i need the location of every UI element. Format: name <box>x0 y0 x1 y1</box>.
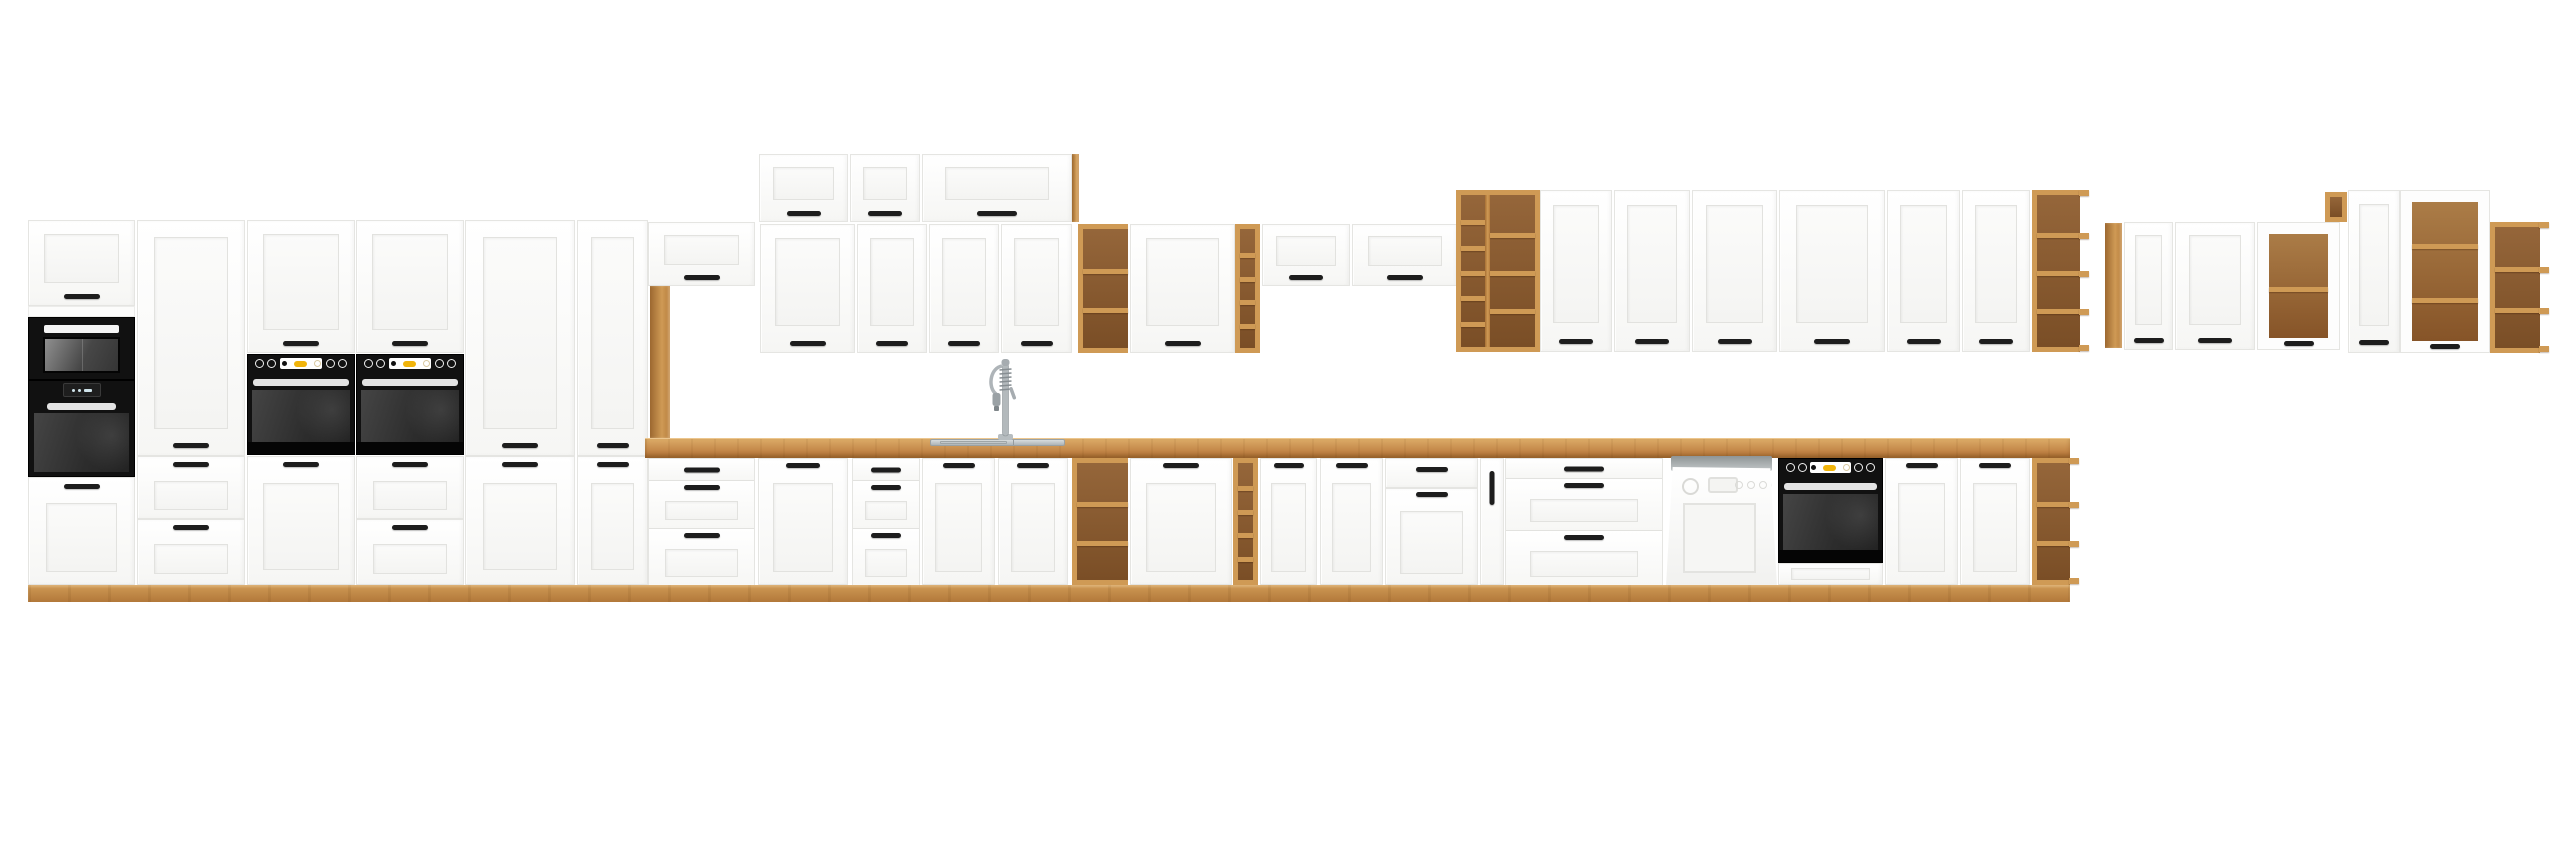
wall-tall-door-1 <box>1540 190 1612 352</box>
oven-column-2-drawer-1-inner-panel <box>373 481 447 510</box>
built-in-oven-2-knob-1 <box>364 359 373 368</box>
right-display-cabinet-1-shelf-1 <box>2269 287 2328 292</box>
tall-oven-unit-top-door-handle <box>64 294 100 299</box>
wall-top-oak-end-panel <box>1072 154 1079 222</box>
oven-column-2-drawer-1 <box>356 456 464 519</box>
base-drawers-wide <box>1505 458 1663 585</box>
base-open-shelf-shelf-1 <box>1077 502 1128 507</box>
base-drawers-1-drawer-1 <box>649 459 754 481</box>
right2-wall-door-inner-panel <box>2359 204 2389 326</box>
base-oak-end-shelf-shelf-lip-3 <box>2069 578 2079 584</box>
oven-column-1-base-door <box>247 456 355 585</box>
right-oak-corner-shelf-shelf-2 <box>2495 308 2540 313</box>
right2-wall-door <box>2348 190 2400 353</box>
wall-tall-door-3-handle <box>1718 339 1752 344</box>
built-in-oven-1-control-strip <box>248 355 354 372</box>
built-in-oven-base-door-glass <box>1783 494 1878 550</box>
base-oak-column-shelf-4 <box>1238 557 1253 562</box>
wall-oak-end-shelf <box>2032 190 2080 352</box>
dishwasher-indicator-lights <box>1735 481 1779 489</box>
oak-shelf-tower-cubby-shelf-5 <box>1461 322 1485 327</box>
wall-door-3-handle <box>948 341 980 346</box>
wall-open-shelf-shelf-2 <box>1083 308 1128 313</box>
built-in-oven-1-knob-2 <box>267 359 276 368</box>
microwave-window-divider <box>82 339 83 371</box>
tall-oven-unit-base-door <box>28 477 135 585</box>
base-oak-end-shelf-shelf-lip-2 <box>2069 541 2079 547</box>
dishwasher-light-3 <box>1759 481 1767 489</box>
oven-column-1-base-door-inner-panel <box>263 483 339 570</box>
base-door-1 <box>758 458 848 585</box>
right-oak-corner-shelf-shelf-lip-2 <box>2539 308 2549 314</box>
built-in-oven-1-knob-4 <box>338 359 347 368</box>
wall-door-2-inner-panel <box>870 238 914 326</box>
wall-door-4 <box>1001 224 1072 353</box>
tall-cabinet-2-upper-door-inner-panel <box>591 237 634 429</box>
wall-oak-end-shelf-shelf-lip-4 <box>2079 345 2089 351</box>
wall-oak-end-shelf-shelf-2 <box>2037 271 2080 276</box>
right-display-cabinet-2-shelf-2 <box>2412 298 2478 303</box>
right-oak-mini-shelf <box>2325 192 2347 222</box>
base-combi-door-inner-panel <box>1400 511 1463 574</box>
base-door-2-inner-panel <box>1146 483 1216 572</box>
base-door-2 <box>1130 458 1232 585</box>
base-combi-door <box>1385 488 1478 585</box>
wall-top-cabinet-1-inner-panel <box>773 167 834 200</box>
base-oak-end-shelf-shelf-1 <box>2037 502 2070 507</box>
wall-tall-door-6-handle <box>1979 339 2013 344</box>
base-oak-column-shelf-3 <box>1238 533 1253 538</box>
wall-oak-end-shelf-shelf-lip-0 <box>2079 190 2089 196</box>
base-door-5 <box>1885 458 1958 585</box>
base-door-6 <box>1960 458 2030 585</box>
tall-cabinet-1-upper-door-handle <box>502 443 538 448</box>
pantry-drawer-2-handle <box>173 525 209 530</box>
built-in-oven-tall-display-dot-1 <box>72 389 75 392</box>
right-display-cabinet-2-handle <box>2430 344 2460 349</box>
built-in-oven-2-indicator-ring <box>423 360 430 367</box>
tall-cabinet-2-upper-door <box>577 220 648 456</box>
base-drawers-1-drawer-1-handle <box>684 467 720 472</box>
base-oak-end-shelf-shelf-lip-1 <box>2069 502 2079 508</box>
oak-shelf-tower <box>1456 190 1540 352</box>
oak-post <box>650 286 670 438</box>
oven-base-drawer <box>1778 563 1883 585</box>
wall-oak-end-shelf-shelf-lip-3 <box>2079 309 2089 315</box>
tall-oven-unit-filler <box>28 306 135 317</box>
microwave <box>28 317 135 380</box>
dishwasher-handle-recess <box>1708 477 1738 493</box>
base-open-shelf <box>1072 458 1128 585</box>
wall-oak-end-shelf-shelf-3 <box>2037 309 2080 314</box>
base-cargo-door <box>1480 458 1504 585</box>
wall-oak-end-shelf-shelf-lip-2 <box>2079 271 2089 277</box>
oven-column-1-base-door-handle <box>283 462 319 467</box>
built-in-oven-2-knob-4 <box>447 359 456 368</box>
built-in-oven-tall-control-strip <box>29 381 134 399</box>
right-display-cabinet-2 <box>2400 190 2490 353</box>
oven-column-2-wall-door-inner-panel <box>372 234 448 330</box>
wall-cabinet-short-1-inner-panel <box>1276 236 1336 266</box>
dishwasher <box>1665 456 1780 586</box>
wall-open-shelf-shelf-1 <box>1083 269 1128 274</box>
right-wall-door-2-handle <box>2198 338 2232 343</box>
built-in-oven-tall-display-dot-2 <box>78 389 81 392</box>
oak-shelf-tower-shelf-3 <box>1490 309 1535 314</box>
base-door-5-inner-panel <box>1898 483 1945 572</box>
microwave-window <box>43 337 121 373</box>
built-in-oven-2 <box>356 354 464 455</box>
faucet-icon <box>985 357 1025 440</box>
built-in-oven-2-door-glass <box>361 390 459 442</box>
wall-open-shelf <box>1078 224 1128 353</box>
wall-door-4-handle <box>1021 341 1053 346</box>
wall-door-5-handle <box>1165 341 1201 346</box>
wall-tall-door-5-inner-panel <box>1900 205 1947 323</box>
base-door-3-handle <box>1274 463 1304 468</box>
right-oak-corner-shelf-shelf-1 <box>2495 267 2540 272</box>
wall-oak-column <box>1235 224 1260 353</box>
base-cargo-door-handle <box>1490 471 1495 505</box>
built-in-oven-2-bottom-trim <box>357 442 463 454</box>
sink-base-door-1-handle <box>943 463 975 468</box>
right-group-oak-side-panel <box>2105 223 2122 348</box>
oven-column-2-drawer-2-inner-panel <box>373 544 447 574</box>
base-drawers-2-drawer-3 <box>853 529 919 586</box>
dishwasher-program-knob <box>1682 478 1699 495</box>
wall-tall-door-3-inner-panel <box>1706 205 1763 323</box>
right-oak-corner-shelf-shelf-lip-3 <box>2539 346 2549 352</box>
dishwasher-open-door <box>1666 467 1777 586</box>
base-door-6-handle <box>1979 463 2011 468</box>
built-in-oven-base-control-strip <box>1779 459 1882 476</box>
right-oak-corner-shelf-shelf-lip-1 <box>2539 267 2549 273</box>
base-drawers-1-drawer-3-handle <box>684 533 720 538</box>
tall-cabinet-2-lower-door-handle <box>597 462 629 467</box>
wall-top-cabinet-3-inner-panel <box>945 167 1049 200</box>
tall-cabinet-1-upper-door-inner-panel <box>483 237 557 429</box>
wall-oak-column-shelf-2 <box>1240 277 1255 282</box>
sink-bowl-edge <box>940 441 1007 444</box>
wall-tall-door-6 <box>1962 190 2030 352</box>
tall-cabinet-1-lower-door-inner-panel <box>483 483 557 570</box>
microwave-door-bar <box>44 325 120 333</box>
wall-oak-end-shelf-shelf-lip-1 <box>2079 233 2089 239</box>
base-drawers-1-drawer-2 <box>649 481 754 529</box>
tall-cabinet-2-upper-door-handle <box>597 443 629 448</box>
wall-tall-door-3 <box>1692 190 1777 352</box>
oak-shelf-tower-cubby-shelf-1 <box>1461 220 1485 225</box>
wall-tall-door-2 <box>1614 190 1690 352</box>
base-drawers-2-drawer-2-handle <box>871 485 901 490</box>
built-in-oven-1-door-glass <box>252 390 350 442</box>
wall-oak-column-shelf-1 <box>1240 253 1255 258</box>
right-oak-corner-shelf <box>2490 222 2540 353</box>
base-door-1-handle <box>786 463 820 468</box>
wall-oak-end-shelf-shelf-1 <box>2037 233 2080 238</box>
pantry-upper-door-handle <box>173 443 209 448</box>
built-in-oven-1-timer-accent <box>294 361 307 367</box>
wall-top-cabinet-1 <box>759 154 848 222</box>
built-in-oven-base-indicator-ring <box>1843 464 1850 471</box>
built-in-oven-1-bottom-trim <box>248 442 354 454</box>
right-display-cabinet-1-handle <box>2284 341 2314 346</box>
built-in-oven-1 <box>247 354 355 455</box>
right-wall-door-1-inner-panel <box>2135 235 2162 325</box>
base-combi-top-drawer <box>1385 458 1478 488</box>
oak-shelf-tower-cubby-shelf-3 <box>1461 271 1485 276</box>
right-wall-door-2-inner-panel <box>2189 235 2241 325</box>
built-in-oven-1-knob-3 <box>326 359 335 368</box>
base-oak-end-shelf-shelf-lip-0 <box>2069 458 2079 464</box>
base-door-2-handle <box>1163 463 1199 468</box>
built-in-oven-base-knob-2 <box>1798 463 1807 472</box>
wall-door-1-handle <box>790 341 826 346</box>
base-door-4 <box>1320 458 1383 585</box>
wall-door-3 <box>929 224 999 353</box>
oven-column-1-wall-door-inner-panel <box>263 234 339 330</box>
built-in-oven-1-indicator-ring <box>314 360 321 367</box>
wall-tall-door-4-inner-panel <box>1796 205 1868 323</box>
base-drawers-1-drawer-3 <box>649 529 754 586</box>
sink-base-door-2-inner-panel <box>1011 483 1055 572</box>
built-in-oven-base-bottom-trim <box>1779 550 1882 562</box>
built-in-oven-tall <box>28 380 135 477</box>
wall-top-cabinet-3-handle <box>977 211 1017 216</box>
pantry-drawer-1 <box>137 456 245 519</box>
wall-oak-column-shelf-3 <box>1240 300 1255 305</box>
built-in-oven-base <box>1778 458 1883 563</box>
oven-column-2-wall-door <box>356 220 464 353</box>
oak-shelf-tower-shelf-1 <box>1490 233 1535 238</box>
base-open-shelf-shelf-2 <box>1077 541 1128 546</box>
built-in-oven-base-timer-accent <box>1823 465 1836 471</box>
right-wall-door-1 <box>2124 222 2173 350</box>
oak-shelf-tower-shelf-column <box>1490 195 1535 347</box>
sink <box>930 439 1065 446</box>
base-drawers-wide-drawer-2-panel <box>1530 499 1638 522</box>
wall-cabinet-over-post-handle <box>684 275 720 280</box>
base-door-4-inner-panel <box>1332 483 1371 572</box>
tall-oven-unit-top-door-inner-panel <box>44 234 119 283</box>
built-in-oven-tall-door-glass <box>34 413 129 472</box>
built-in-oven-base-control-panel <box>1810 462 1851 473</box>
base-drawers-wide-drawer-1 <box>1506 459 1662 479</box>
base-door-4-handle <box>1336 463 1368 468</box>
right-display-cabinet-1 <box>2257 222 2340 350</box>
pantry-drawer-2-inner-panel <box>154 544 228 574</box>
built-in-oven-2-knob-2 <box>376 359 385 368</box>
base-drawers-wide-drawer-3-panel <box>1530 551 1638 577</box>
base-drawers-2 <box>852 458 920 585</box>
right-wall-door-2 <box>2175 222 2255 350</box>
pantry-upper-door <box>137 220 245 456</box>
base-oak-end-shelf-shelf-2 <box>2037 541 2070 546</box>
built-in-oven-2-control-strip <box>357 355 463 372</box>
built-in-oven-2-control-panel <box>389 358 431 369</box>
wall-tall-door-5 <box>1887 190 1960 352</box>
tall-cabinet-1-lower-door <box>465 456 575 585</box>
pantry-drawer-1-handle <box>173 462 209 467</box>
base-oak-column <box>1233 458 1258 585</box>
wall-door-4-inner-panel <box>1014 238 1059 326</box>
built-in-oven-2-knob-3 <box>435 359 444 368</box>
kitchen-set-product-image <box>0 0 2560 848</box>
built-in-oven-base-knob-3 <box>1854 463 1863 472</box>
oven-column-2-drawer-1-handle <box>392 462 428 467</box>
wall-cabinet-over-post <box>648 222 755 286</box>
base-drawers-2-drawer-1 <box>853 459 919 481</box>
base-drawers-2-drawer-3-handle <box>871 533 901 538</box>
base-drawers-2-drawer-1-handle <box>871 467 901 472</box>
oven-column-1-wall-door <box>247 220 355 353</box>
base-oak-column-shelf-2 <box>1238 510 1253 515</box>
tall-cabinet-2-lower-door-inner-panel <box>591 483 634 570</box>
wall-tall-door-1-inner-panel <box>1553 205 1599 323</box>
right2-wall-door-handle <box>2359 340 2389 345</box>
wall-top-cabinet-2-handle <box>868 211 902 216</box>
built-in-oven-base-power-dot <box>1811 465 1816 470</box>
right-oak-corner-shelf-shelf-lip-0 <box>2539 222 2549 228</box>
base-combi-top-drawer-handle <box>1416 467 1448 472</box>
base-door-5-handle <box>1906 463 1938 468</box>
built-in-oven-1-control-panel <box>280 358 322 369</box>
base-combi-door-handle <box>1416 492 1448 497</box>
base-drawers-1 <box>648 458 755 585</box>
base-drawers-wide-drawer-3 <box>1506 531 1662 586</box>
kitchen-faucet <box>985 357 1025 440</box>
built-in-oven-base-handle-bar <box>1784 483 1877 490</box>
wall-oak-column-shelf-4 <box>1240 324 1255 329</box>
right-wall-door-1-handle <box>2134 338 2164 343</box>
wall-door-2 <box>857 224 927 353</box>
base-drawers-1-drawer-2-panel <box>665 501 738 520</box>
oven-base-drawer-inner-panel <box>1791 568 1870 580</box>
dishwasher-door-panel-frame <box>1683 503 1756 573</box>
base-drawers-1-drawer-2-handle <box>684 485 720 490</box>
oak-shelf-tower-cubby-shelf-4 <box>1461 296 1485 301</box>
built-in-oven-2-timer-accent <box>403 361 416 367</box>
dishwasher-light-1 <box>1735 481 1743 489</box>
wall-tall-door-1-handle <box>1559 339 1593 344</box>
base-door-1-inner-panel <box>773 483 833 572</box>
base-drawers-wide-drawer-3-handle <box>1564 535 1604 540</box>
built-in-oven-base-knob-4 <box>1866 463 1875 472</box>
base-oak-end-shelf <box>2032 458 2070 585</box>
wall-tall-door-5-handle <box>1907 339 1941 344</box>
wall-cabinet-over-post-inner-panel <box>664 235 739 265</box>
oven-column-2-drawer-2 <box>356 519 464 585</box>
wall-door-5-inner-panel <box>1146 238 1219 326</box>
base-drawers-wide-drawer-1-handle <box>1564 466 1604 471</box>
tall-cabinet-1-lower-door-handle <box>502 462 538 467</box>
wall-door-3-inner-panel <box>942 238 986 326</box>
wall-top-cabinet-1-handle <box>787 211 821 216</box>
sink-base-door-1 <box>922 458 995 585</box>
tall-cabinet-1-upper-door <box>465 220 575 456</box>
sink-base-door-2-handle <box>1017 463 1049 468</box>
wall-tall-door-4-handle <box>1814 339 1850 344</box>
base-drawers-2-drawer-2 <box>853 481 919 529</box>
built-in-oven-2-power-dot <box>391 361 396 366</box>
base-drawers-wide-drawer-2 <box>1506 479 1662 531</box>
base-door-3 <box>1260 458 1317 585</box>
built-in-oven-base-knob-1 <box>1786 463 1795 472</box>
wall-top-cabinet-3 <box>922 154 1072 222</box>
wall-cabinet-short-2-inner-panel <box>1368 236 1442 266</box>
sink-base-door-2 <box>998 458 1068 585</box>
dishwasher-light-2 <box>1747 481 1755 489</box>
oak-shelf-tower-cubby-shelf-2 <box>1461 246 1485 251</box>
right-display-cabinet-1-interior <box>2269 234 2328 338</box>
tall-oven-unit-base-door-inner-panel <box>46 503 117 572</box>
oven-column-2-drawer-2-handle <box>392 525 428 530</box>
base-drawers-1-drawer-3-panel <box>665 549 738 577</box>
wall-tall-door-2-inner-panel <box>1627 205 1677 323</box>
wall-tall-door-2-handle <box>1635 339 1669 344</box>
base-oak-column-shelf-1 <box>1238 486 1253 491</box>
base-door-3-inner-panel <box>1271 483 1306 572</box>
pantry-upper-door-inner-panel <box>154 237 228 429</box>
wall-cabinet-short-2 <box>1352 224 1458 286</box>
base-drawers-wide-drawer-2-handle <box>1564 483 1604 488</box>
base-drawers-2-drawer-3-panel <box>865 549 907 577</box>
tall-oven-unit-top-door <box>28 220 135 306</box>
wall-tall-door-6-inner-panel <box>1975 205 2017 323</box>
sink-base-door-1-inner-panel <box>935 483 982 572</box>
wall-door-2-handle <box>876 341 908 346</box>
built-in-oven-1-handle-bar <box>253 379 349 386</box>
pantry-drawer-2 <box>137 519 245 585</box>
countertop <box>645 438 2070 458</box>
wall-cabinet-short-1 <box>1262 224 1350 286</box>
right-display-cabinet-2-shelf-1 <box>2412 244 2478 249</box>
right-display-cabinet-2-interior <box>2412 202 2478 341</box>
plinth <box>28 585 2070 602</box>
oak-shelf-tower-shelf-2 <box>1490 271 1535 276</box>
wall-door-5 <box>1130 224 1235 353</box>
tall-oven-unit-base-door-handle <box>64 484 100 489</box>
wall-cabinet-short-1-handle <box>1289 275 1323 280</box>
wall-top-cabinet-2-inner-panel <box>863 167 907 200</box>
wall-top-cabinet-2 <box>850 154 920 222</box>
built-in-oven-1-power-dot <box>282 361 287 366</box>
built-in-oven-2-handle-bar <box>362 379 458 386</box>
oven-column-2-wall-door-handle <box>392 341 428 346</box>
built-in-oven-tall-display-segment <box>84 389 92 392</box>
wall-cabinet-short-2-handle <box>1387 275 1423 280</box>
pantry-drawer-1-inner-panel <box>154 481 228 510</box>
wall-door-1 <box>760 224 855 353</box>
built-in-oven-tall-handle-bar <box>47 403 116 410</box>
tall-cabinet-2-lower-door <box>577 456 648 585</box>
base-door-6-inner-panel <box>1973 483 2017 572</box>
base-drawers-2-drawer-2-panel <box>865 501 907 520</box>
sink-divider <box>1013 440 1014 445</box>
built-in-oven-tall-display <box>63 383 101 397</box>
oak-shelf-tower-cubby-column <box>1461 195 1485 347</box>
wall-tall-door-4 <box>1779 190 1885 352</box>
built-in-oven-1-knob-1 <box>255 359 264 368</box>
wall-door-1-inner-panel <box>775 238 840 326</box>
oven-column-1-wall-door-handle <box>283 341 319 346</box>
